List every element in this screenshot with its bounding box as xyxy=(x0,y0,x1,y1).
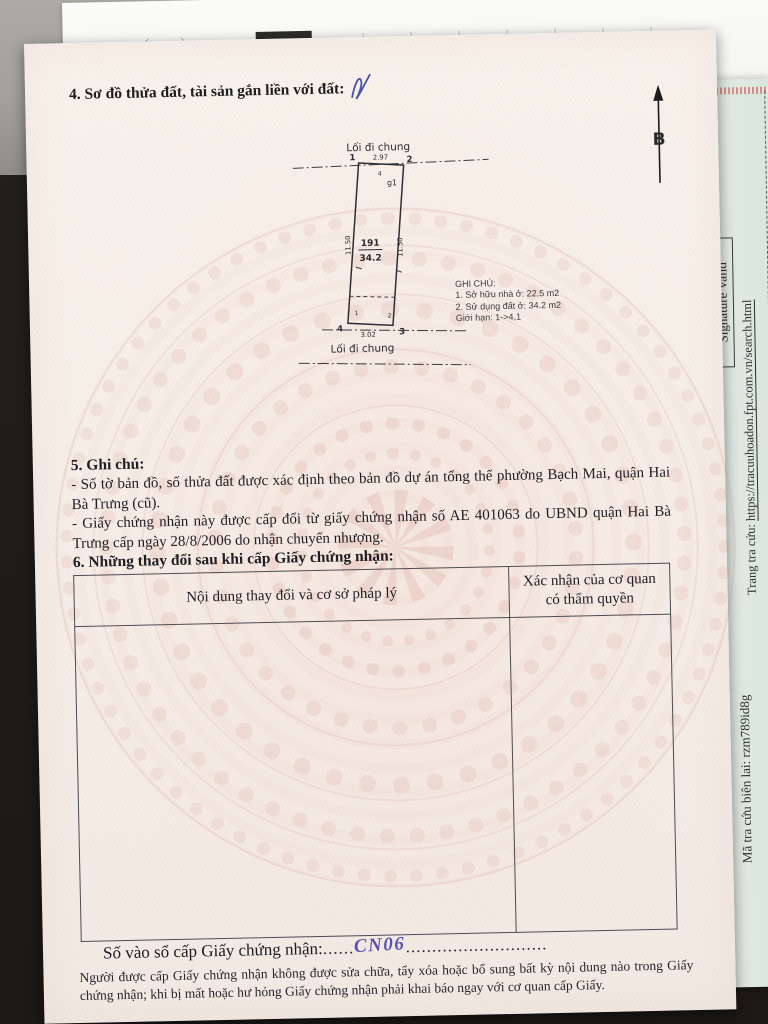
lookup-page-line: Trang tra cứu: https://tracuuhoadon.fpt.… xyxy=(736,89,760,595)
fold-dashed-line xyxy=(764,91,768,569)
north-arrow: B xyxy=(645,82,673,194)
corner-3-label: 3 xyxy=(399,327,405,337)
certificate-footer-note: Người được cấp Giấy chứng nhận không đượ… xyxy=(79,956,694,1005)
registry-label: Số vào sổ cấp Giấy chứng nhận: xyxy=(103,939,323,963)
dotted-leader: ...... xyxy=(323,938,355,958)
dim-right: 11.50 xyxy=(396,237,404,257)
changes-col1-header: Nội dung thay đổi và cơ sở pháp lý xyxy=(74,566,510,626)
corner-2-label: 2 xyxy=(406,155,412,165)
plot-diagram: Lối đi chung 1 2 3 4 2.97 4 g1 191 34.2 xyxy=(290,130,515,390)
changes-col1-cell xyxy=(75,617,517,941)
dim-top: 2.97 xyxy=(373,153,388,161)
mark-top: 4 xyxy=(378,171,382,178)
plot-area: 34.2 xyxy=(359,254,381,264)
handwritten-mark xyxy=(348,88,372,105)
corner-1-label: 1 xyxy=(349,153,355,163)
plot-number: 191 xyxy=(361,239,380,249)
dim-bottom: 3.02 xyxy=(361,331,376,339)
dim-left: 11.50 xyxy=(344,235,352,255)
lookup-code-line: Mã tra cứu biên lai: rzm789id8g xyxy=(734,549,755,863)
registry-handwritten-value: CN06 xyxy=(354,933,407,958)
top-path-label: Lối đi chung xyxy=(346,141,410,154)
changes-col2-cell xyxy=(510,614,677,932)
changes-col2-header: Xác nhận của cơ quan có thẩm quyền xyxy=(509,563,671,617)
north-letter: B xyxy=(652,130,665,150)
section4-heading-text: 4. Sơ đồ thửa đất, tài sản gắn liền với … xyxy=(69,80,345,103)
mark-bottom-right: 2 xyxy=(388,312,392,319)
changes-empty-row xyxy=(75,614,677,941)
land-certificate-page: 4. Sơ đồ thửa đất, tài sản gắn liền với … xyxy=(24,30,736,1024)
mark-bottom-left: 1 xyxy=(355,310,359,317)
certificate-text-sections: 5. Ghi chú: - Số tờ bản đồ, số thửa đất … xyxy=(71,445,680,942)
bottom-path-label: Lối đi chung xyxy=(330,342,394,355)
diagram-notes: GHI CHÚ: 1. Sở hữu nhà ở: 22.5 m2 2. Sử … xyxy=(455,275,641,324)
section4-heading: 4. Sơ đồ thửa đất, tài sản gắn liền với … xyxy=(69,73,373,112)
dotted-leader: ........................... xyxy=(405,934,547,956)
changes-table: Nội dung thay đổi và cơ sở pháp lý Xác n… xyxy=(73,563,678,942)
g1-label: g1 xyxy=(387,178,397,187)
lookup-url: https://tracuuhoadon.fpt.com.vn/search.h… xyxy=(740,299,758,521)
